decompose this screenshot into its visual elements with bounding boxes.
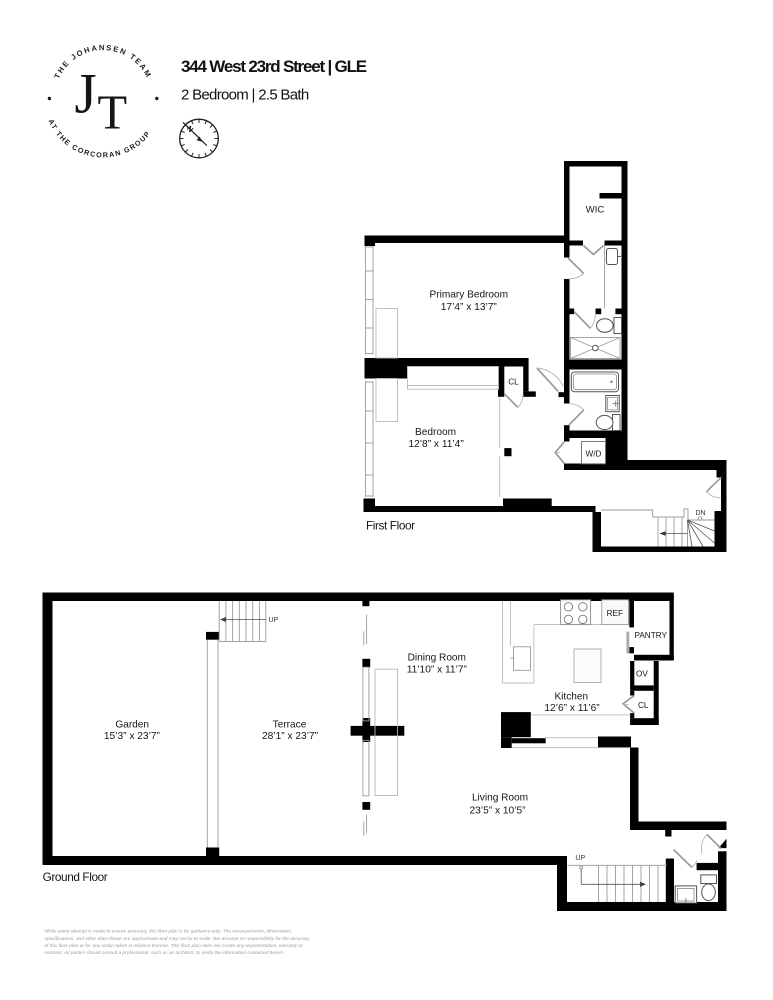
svg-text:of this floor plan or for any: of this floor plan or for any action tak… bbox=[45, 943, 304, 949]
svg-text:CL: CL bbox=[638, 701, 649, 710]
svg-text:UP: UP bbox=[269, 617, 279, 624]
svg-text:17’4” x 13’7”: 17’4” x 13’7” bbox=[441, 302, 498, 313]
svg-text:Garden: Garden bbox=[115, 720, 149, 731]
svg-text:PANTRY: PANTRY bbox=[634, 631, 667, 640]
svg-text:UP: UP bbox=[575, 855, 585, 862]
svg-text:12’8” x 11’4”: 12’8” x 11’4” bbox=[408, 439, 464, 450]
svg-text:344 West 23rd Street | GLE: 344 West 23rd Street | GLE bbox=[181, 57, 367, 76]
svg-text:15’3” x 23’7”: 15’3” x 23’7” bbox=[104, 731, 161, 742]
svg-text:W/D: W/D bbox=[586, 450, 602, 459]
svg-text:Ground Floor: Ground Floor bbox=[43, 870, 108, 884]
svg-text:23’5” x 10’5”: 23’5” x 10’5” bbox=[469, 806, 526, 817]
svg-text:DN: DN bbox=[695, 510, 705, 517]
svg-text:Kitchen: Kitchen bbox=[554, 692, 588, 703]
svg-text:CL: CL bbox=[508, 378, 519, 387]
svg-text:Dining Room: Dining Room bbox=[408, 653, 466, 664]
svg-text:REF: REF bbox=[607, 609, 623, 618]
svg-text:12’6” x 11’6”: 12’6” x 11’6” bbox=[544, 703, 600, 714]
svg-text:OV: OV bbox=[636, 669, 648, 678]
svg-text:specifications, and other data: specifications, and other data shown are… bbox=[45, 936, 311, 942]
svg-text:T: T bbox=[98, 87, 128, 140]
svg-text:2 Bedroom | 2.5 Bath: 2 Bedroom | 2.5 Bath bbox=[181, 87, 309, 104]
svg-text:WIC: WIC bbox=[586, 204, 605, 215]
svg-text:Terrace: Terrace bbox=[273, 720, 307, 731]
svg-text:First Floor: First Floor bbox=[366, 519, 415, 533]
svg-text:11’10” x 11’7”: 11’10” x 11’7” bbox=[407, 664, 468, 675]
svg-text:28’1” x 23’7”: 28’1” x 23’7” bbox=[262, 731, 319, 742]
svg-text:Living Room: Living Room bbox=[472, 793, 528, 804]
svg-text:contract. All parties should c: contract. All parties should consult a p… bbox=[45, 950, 285, 956]
svg-text:J: J bbox=[75, 63, 97, 126]
svg-text:While every attempt is made to: While every attempt is made to ensure ac… bbox=[45, 929, 293, 935]
svg-text:Bedroom: Bedroom bbox=[415, 427, 456, 438]
svg-text:Primary Bedroom: Primary Bedroom bbox=[430, 290, 509, 301]
